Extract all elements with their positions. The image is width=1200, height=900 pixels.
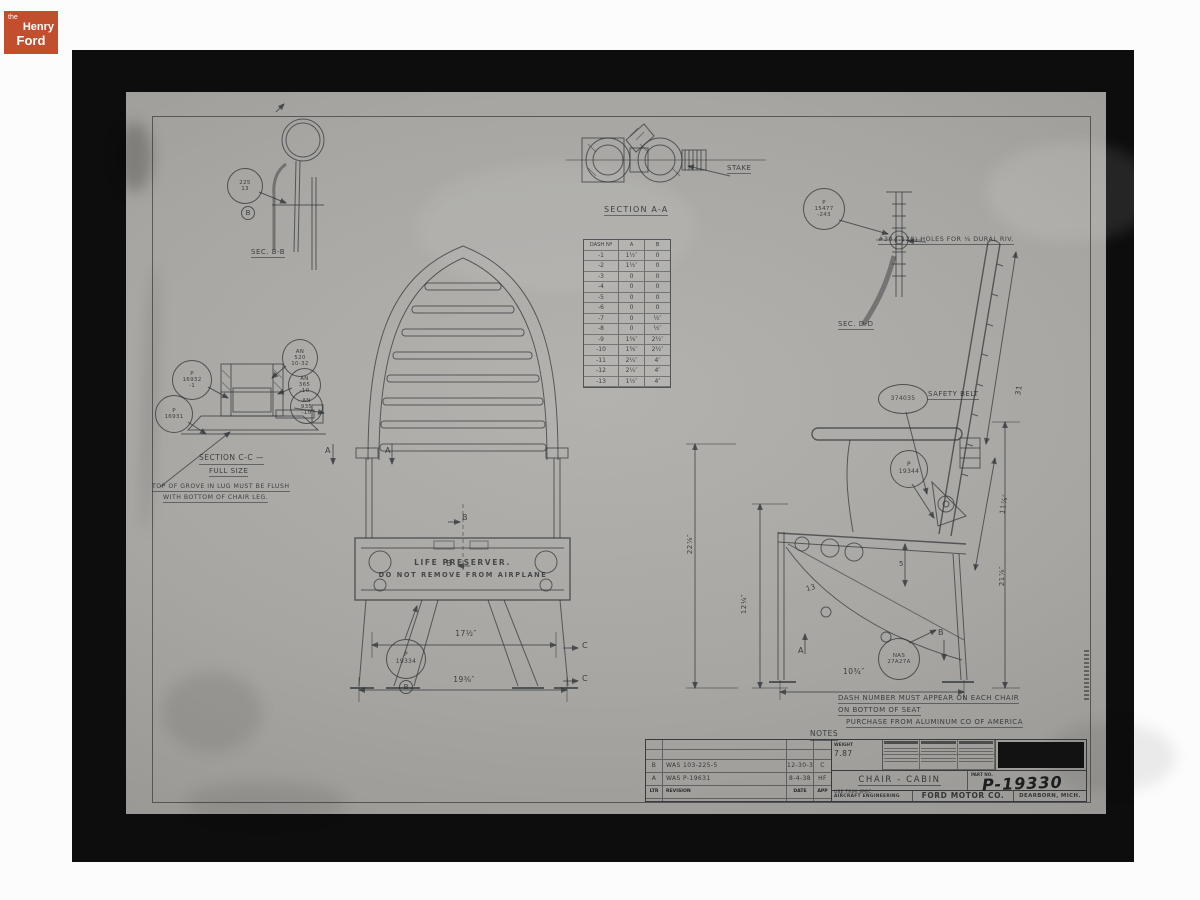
- cell-a: 0: [619, 272, 645, 283]
- revision-row-empty: [646, 740, 831, 750]
- title-block-top-strip: WEIGHT 7.87: [832, 740, 1086, 771]
- cell-b: 4″: [645, 356, 670, 367]
- logo-text-the: the: [8, 14, 54, 21]
- department: AIRCRAFT ENGINEERING: [834, 795, 912, 799]
- rev-header: REVISION: [663, 786, 787, 798]
- col-header: B: [645, 240, 670, 251]
- table-row: -4 0 0: [584, 282, 670, 293]
- approval-cell: [883, 740, 920, 755]
- section-marker-c: C: [582, 674, 588, 683]
- title-block-bottom-row: USE TRIM SPEC AIRCRAFT ENGINEERING FORD …: [832, 791, 1086, 801]
- balloon-an935: AN 935 -10: [290, 390, 323, 424]
- col-header: DASH Nº: [584, 240, 619, 251]
- cell-dash: -12: [584, 366, 619, 377]
- blacked-out-cell: [998, 742, 1084, 768]
- table-row: -13 1½″ 4″: [584, 377, 670, 388]
- cell-dash: -10: [584, 345, 619, 356]
- weight-cell: WEIGHT 7.87: [832, 740, 883, 770]
- cell-dash: -1: [584, 251, 619, 262]
- table-row: -5 0 0: [584, 293, 670, 304]
- section-cc-note2: WITH BOTTOM OF CHAIR LEG.: [163, 494, 268, 503]
- balloon-line: -10: [302, 410, 312, 416]
- balloon-line: 27A27A: [887, 659, 910, 665]
- table-row: -7 0 ½″: [584, 314, 670, 325]
- cell-b: 2½″: [645, 345, 670, 356]
- table-header-row: DASH Nº A B: [584, 240, 670, 251]
- table-row: -1 1½″ 0: [584, 251, 670, 262]
- revision-row-empty: [646, 750, 831, 760]
- table-row: -9 1⅜″ 2½″: [584, 335, 670, 346]
- balloon-225-13: 225 13: [227, 168, 263, 204]
- rev-letter: A: [646, 773, 663, 785]
- weight-label: WEIGHT: [834, 742, 880, 747]
- dim-22: 22⅞″: [686, 534, 694, 554]
- table-row: -3 0 0: [584, 272, 670, 283]
- cell-a: 1½″: [619, 377, 645, 388]
- balloon-line: 10-32: [291, 361, 308, 367]
- cell-a: 2¼″: [619, 366, 645, 377]
- cell-b: ½″: [645, 314, 670, 325]
- cell-dash: -4: [584, 282, 619, 293]
- drawing-title-cell: CHAIR - CABIN: [832, 771, 968, 790]
- rev-date: 12-30-38: [787, 760, 814, 772]
- cell-a: 0: [619, 293, 645, 304]
- scanned-blueprint-photo: the Henry Ford: [0, 0, 1200, 900]
- rev-letter: B: [646, 760, 663, 772]
- table-row: -8 0 ½″: [584, 324, 670, 335]
- balloon-p16932: P 16932 -1: [172, 360, 212, 400]
- drawing-title: CHAIR - CABIN: [858, 775, 940, 786]
- cell-b: 2½″: [645, 335, 670, 346]
- part-number: P-19330: [982, 773, 1063, 795]
- table-row: -11 2¼″ 4″: [584, 356, 670, 367]
- cell-b: 0: [645, 282, 670, 293]
- section-cc-fullsize: FULL SIZE: [209, 467, 248, 477]
- balloon-p15477: P 15477 -243: [803, 188, 845, 230]
- rev-approved: HF: [814, 773, 831, 785]
- balloon-line: -1: [189, 383, 195, 389]
- balloon-nas: NAS 27A27A: [878, 638, 920, 680]
- rev-approved: C: [814, 760, 831, 772]
- approval-cell: [920, 755, 957, 770]
- note-line1: DASH NUMBER MUST APPEAR ON EACH CHAIR: [838, 694, 1019, 704]
- section-marker-a: A: [798, 646, 804, 655]
- table-body: -1 1½″ 0 -2 1½″ 0 -3 0 0 -4 0 0: [584, 251, 670, 388]
- rev-header: APP: [814, 786, 831, 798]
- revision-row: B WAS 103-225-5 12-30-38 C: [646, 760, 831, 773]
- cell-a: 0: [619, 324, 645, 335]
- balloon-line: 19334: [396, 659, 417, 666]
- dim-10: 10¾″: [843, 668, 865, 677]
- rev-description: WAS P-19631: [663, 773, 787, 785]
- cell-a: 2¼″: [619, 356, 645, 367]
- cell-dash: -8: [584, 324, 619, 335]
- section-marker-c: C: [582, 641, 588, 650]
- title-block-main: WEIGHT 7.87 CHAIR - CABIN P: [832, 740, 1086, 801]
- cell-b: 0: [645, 251, 670, 262]
- logo-text-henry: Henry: [8, 22, 54, 33]
- table-row: -12 2¼″ 4″: [584, 366, 670, 377]
- stencil-life-preserver: LIFE PRESERVER.: [400, 559, 525, 568]
- cell-b: 4″: [645, 366, 670, 377]
- stake-label: STAKE: [727, 164, 751, 174]
- detail-marker-b: B: [241, 206, 255, 220]
- sec-bb-caption: SEC. B-B: [251, 248, 285, 258]
- part-number-cell: PART NO. P-19330: [968, 771, 1086, 790]
- cell-a: 0: [619, 303, 645, 314]
- detail-marker-b: B: [399, 680, 413, 694]
- note-line3: PURCHASE FROM ALUMINUM CO OF AMERICA: [846, 718, 1023, 728]
- balloon-line: -243: [817, 212, 831, 218]
- section-marker-b: B: [446, 559, 452, 568]
- dim-5: 5: [899, 560, 904, 568]
- dim-17-half: 17½″: [448, 630, 484, 639]
- dim-19-three-eighths: 19⅜″: [446, 676, 482, 685]
- approval-cell: [920, 740, 957, 755]
- balloon-374035: 374035: [878, 384, 928, 414]
- section-marker-b: B: [462, 513, 468, 522]
- approval-cell: [958, 755, 995, 770]
- cell-b: 4″: [645, 377, 670, 388]
- dash-number-table: DASH Nº A B -1 1½″ 0 -2 1½″ 0 -3 0 0: [583, 239, 671, 388]
- revision-row-empty: [646, 799, 831, 801]
- title-block: B WAS 103-225-5 12-30-38 C A WAS P-19631…: [645, 739, 1087, 802]
- balloon-line: 13: [241, 186, 249, 192]
- rev-header: DATE: [787, 786, 814, 798]
- sec-dd-caption: SEC. D-D: [838, 320, 874, 330]
- balloon-p16931: P 16931: [155, 395, 193, 433]
- department-cell: USE TRIM SPEC AIRCRAFT ENGINEERING: [832, 791, 913, 801]
- title-row: CHAIR - CABIN PART NO. P-19330: [832, 771, 1086, 791]
- table-row: -6 0 0: [584, 303, 670, 314]
- logo-text-ford: Ford: [8, 34, 54, 47]
- dim-31: 31: [1014, 384, 1024, 396]
- cell-a: 1½″: [619, 251, 645, 262]
- stencil-do-not-remove: DO NOT REMOVE FROM AIRPLANE: [378, 572, 548, 580]
- rev-date: 8-4-38: [787, 773, 814, 785]
- col-header: A: [619, 240, 645, 251]
- section-aa-caption: SECTION A-A: [604, 205, 668, 216]
- drill-note: #30 (.128) HOLES FOR ⅛ DURAL RIV.: [878, 236, 1014, 245]
- approval-cells-illegible: [883, 740, 996, 770]
- cell-dash: -13: [584, 377, 619, 388]
- cell-dash: -6: [584, 303, 619, 314]
- balloon-p19334: P 19334: [386, 639, 426, 679]
- balloon-line: 374035: [891, 396, 916, 403]
- cell-b: 0: [645, 272, 670, 283]
- balloon-line: 19344: [899, 469, 920, 476]
- edge-marking: [1084, 648, 1089, 700]
- revision-block: B WAS 103-225-5 12-30-38 C A WAS P-19631…: [646, 740, 832, 801]
- cell-dash: -5: [584, 293, 619, 304]
- note-line2: ON BOTTOM OF SEAT: [838, 706, 921, 716]
- cell-b: 0: [645, 293, 670, 304]
- balloon-line: 16931: [165, 414, 184, 420]
- weight-value: 7.87: [834, 749, 880, 758]
- rev-header: LTR: [646, 786, 663, 798]
- section-marker-a: A: [385, 446, 391, 455]
- approval-cell: [958, 740, 995, 755]
- table-row: -2 1½″ 0: [584, 261, 670, 272]
- rev-description: WAS 103-225-5: [663, 760, 787, 772]
- line-art: [126, 92, 1106, 814]
- dim-12: 12¼″: [740, 594, 748, 614]
- cell-dash: -9: [584, 335, 619, 346]
- approval-cell: [883, 755, 920, 770]
- section-marker-a: A: [325, 446, 331, 455]
- cell-b: ½″: [645, 324, 670, 335]
- table-row: -10 1⅜″ 2½″: [584, 345, 670, 356]
- cell-a: 1⅜″: [619, 335, 645, 346]
- revision-row: A WAS P-19631 8-4-38 HF: [646, 773, 831, 786]
- revision-rows: B WAS 103-225-5 12-30-38 C A WAS P-19631…: [646, 760, 831, 786]
- cell-a: 0: [619, 282, 645, 293]
- cell-b: 0: [645, 261, 670, 272]
- cell-a: 1½″: [619, 261, 645, 272]
- cell-a: 0: [619, 314, 645, 325]
- cell-dash: -7: [584, 314, 619, 325]
- section-marker-b: B: [938, 628, 944, 637]
- revision-header-row: LTR REVISION DATE APP: [646, 786, 831, 799]
- cell-dash: -3: [584, 272, 619, 283]
- cell-dash: -11: [584, 356, 619, 367]
- section-cc-note1: TOP OF GROVE IN LUG MUST BE FLUSH: [152, 483, 290, 492]
- section-cc-caption: SECTION C-C —: [199, 454, 264, 465]
- dim-21: 21⅞″: [998, 566, 1006, 586]
- cell-a: 1⅜″: [619, 345, 645, 356]
- safety-belt-label: SAFETY BELT: [928, 390, 979, 400]
- cell-b: 0: [645, 303, 670, 314]
- balloon-p19344: P 19344: [890, 450, 928, 488]
- cell-dash: -2: [584, 261, 619, 272]
- henry-ford-logo: the Henry Ford: [4, 11, 58, 54]
